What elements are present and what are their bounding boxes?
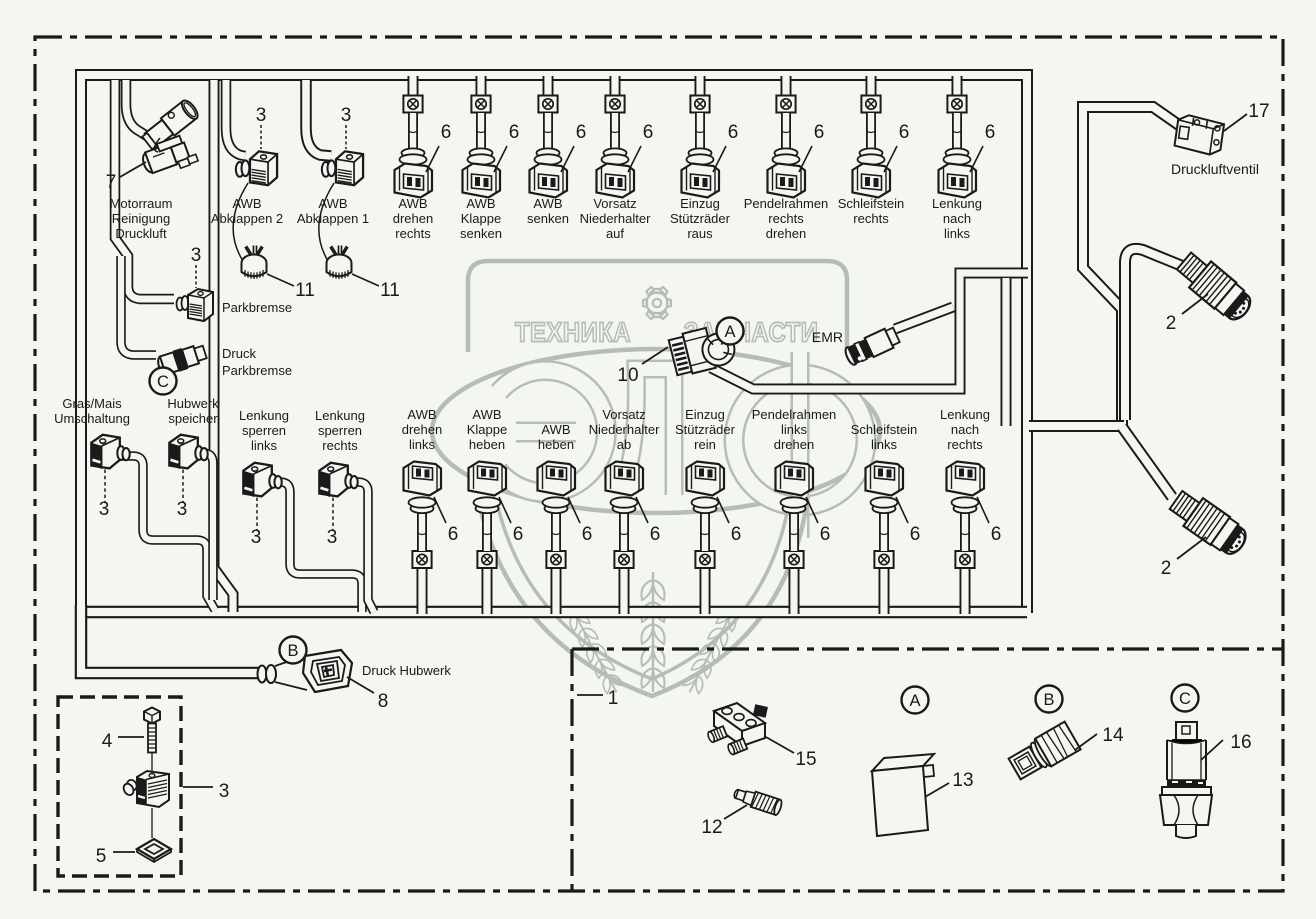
svg-text:Druckluftventil: Druckluftventil (1171, 161, 1259, 177)
svg-text:3: 3 (99, 499, 110, 520)
svg-text:11: 11 (295, 280, 315, 301)
svg-text:3: 3 (219, 781, 230, 802)
svg-text:Hubwerkspeicher: Hubwerkspeicher (167, 396, 219, 426)
svg-text:3: 3 (251, 527, 262, 548)
svg-text:C: C (157, 373, 169, 391)
svg-text:8: 8 (378, 691, 389, 712)
svg-text:AWBKlappeheben: AWBKlappeheben (467, 407, 507, 452)
svg-text:3: 3 (327, 527, 338, 548)
svg-text:MotorraumReinigungDruckluft: MotorraumReinigungDruckluft (110, 196, 173, 241)
svg-text:Parkbremse: Parkbremse (222, 363, 292, 378)
svg-text:17: 17 (1248, 101, 1269, 122)
svg-text:Druck: Druck (222, 346, 256, 361)
svg-text:11: 11 (380, 280, 400, 301)
svg-text:2: 2 (1166, 313, 1177, 334)
svg-text:B: B (287, 642, 298, 660)
svg-text:AWBdrehenrechts: AWBdrehenrechts (393, 196, 433, 241)
svg-text:Lenkungsperrenrechts: Lenkungsperrenrechts (315, 408, 365, 453)
svg-text:12: 12 (701, 817, 722, 838)
svg-text:10: 10 (617, 365, 638, 386)
svg-text:Gras/MaisUmschaltung: Gras/MaisUmschaltung (54, 396, 130, 426)
svg-text:A: A (909, 692, 920, 710)
svg-text:3: 3 (177, 499, 188, 520)
svg-text:13: 13 (952, 770, 973, 791)
svg-text:3: 3 (341, 105, 352, 126)
svg-text:3: 3 (256, 105, 267, 126)
svg-text:AWBheben: AWBheben (538, 422, 574, 452)
svg-text:14: 14 (1102, 725, 1124, 746)
svg-text:C: C (1179, 690, 1191, 708)
svg-text:7: 7 (106, 172, 117, 193)
svg-text:A: A (724, 323, 735, 341)
svg-text:ТЕХНИКА: ТЕХНИКА (515, 315, 631, 347)
svg-text:16: 16 (1230, 732, 1251, 753)
svg-text:EMR: EMR (812, 329, 843, 345)
svg-text:2: 2 (1161, 558, 1172, 579)
svg-text:1: 1 (608, 688, 619, 709)
svg-text:Druck Hubwerk: Druck Hubwerk (362, 663, 451, 678)
svg-text:Parkbremse: Parkbremse (222, 300, 292, 315)
svg-text:15: 15 (795, 749, 816, 770)
svg-text:4: 4 (102, 731, 113, 752)
svg-text:3: 3 (191, 245, 202, 266)
svg-text:5: 5 (96, 846, 107, 867)
svg-text:B: B (1043, 691, 1054, 709)
